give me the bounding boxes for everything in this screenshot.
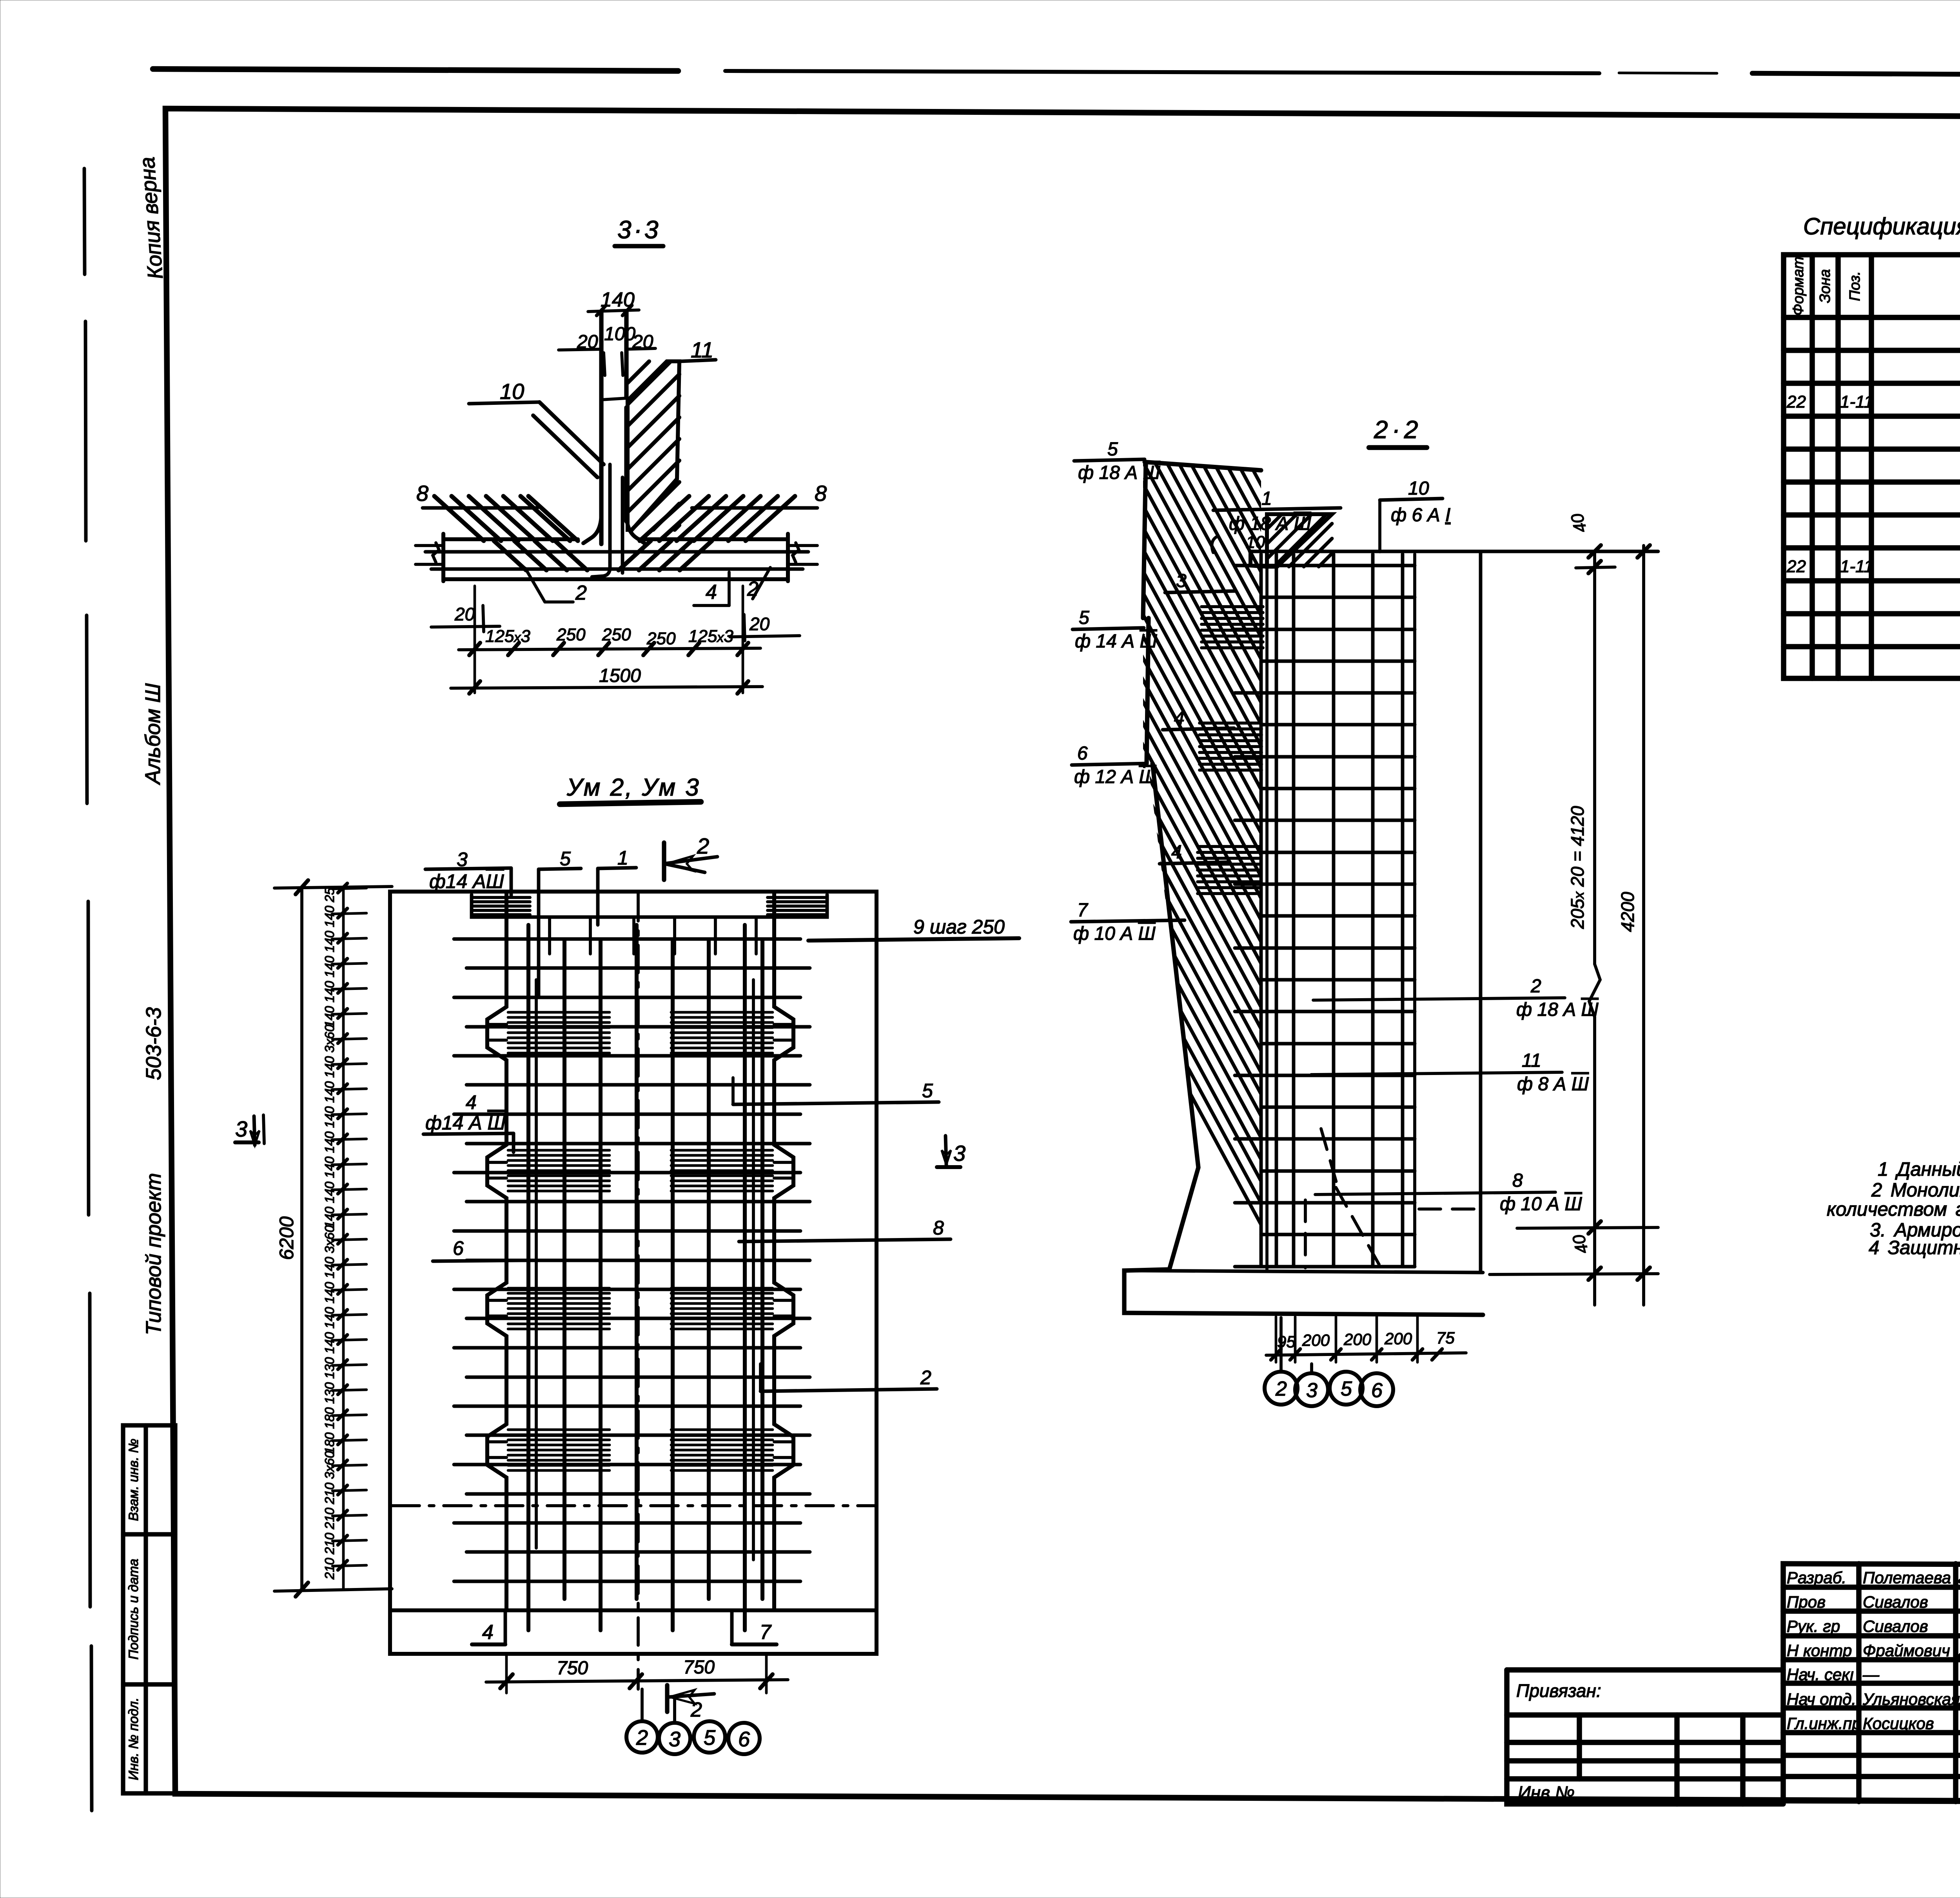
svg-text:180: 180 [322,1407,337,1429]
svg-text:10: 10 [500,379,524,404]
svg-text:ф14 АШ: ф14 АШ [429,870,505,892]
svg-text:Пров: Пров [1787,1593,1826,1611]
svg-text:2·2: 2·2 [1374,415,1422,444]
svg-text:ф 18 А Ш: ф 18 А Ш [1078,462,1161,483]
svg-text:ф 10 А Ш: ф 10 А Ш [1073,923,1156,944]
svg-text:3: 3 [1306,1379,1318,1402]
svg-text:Спецификация: Спецификация [1803,213,1960,239]
svg-text:Фраймович: Фраймович [1863,1641,1950,1660]
svg-text:4: 4 [482,1621,494,1644]
svg-text:—: — [1862,1665,1880,1684]
svg-text:250: 250 [602,625,631,644]
svg-text:140: 140 [322,1181,337,1203]
svg-text:140: 140 [322,981,337,1002]
svg-text:7: 7 [760,1621,772,1644]
svg-text:5: 5 [1107,439,1118,460]
svg-text:140: 140 [322,1156,337,1178]
svg-text:140: 140 [322,1256,337,1278]
svg-text:200: 200 [1384,1329,1412,1348]
svg-text:Разраб.: Разраб. [1787,1568,1846,1587]
svg-text:ф 10 А Ш: ф 10 А Ш [1500,1194,1583,1215]
svg-text:количеством гнезд сопряжения: количеством гнезд сопряжения. [1827,1199,1960,1220]
svg-text:5: 5 [1079,607,1089,628]
svg-text:ф 8 А Ш: ф 8 А Ш [1517,1074,1589,1095]
svg-text:9 шаг 250: 9 шаг 250 [913,916,1005,938]
svg-text:6: 6 [453,1237,464,1259]
svg-text:Типовой проект: Типовой проект [142,1173,165,1335]
svg-text:200: 200 [1302,1331,1330,1349]
svg-text:75: 75 [1436,1329,1455,1347]
svg-text:750: 750 [683,1657,715,1678]
svg-text:140: 140 [322,1282,337,1303]
svg-text:3х60: 3х60 [322,1225,337,1253]
svg-text:ф 18 А Ш: ф 18 А Ш [1229,513,1312,534]
svg-text:5: 5 [704,1726,716,1749]
svg-text:10: 10 [1408,478,1429,499]
svg-text:2: 2 [690,1699,702,1721]
svg-text:3: 3 [953,1141,965,1166]
svg-text:210: 210 [322,1507,337,1530]
svg-text:8: 8 [1512,1170,1523,1191]
svg-text:Гл.инж.пр: Гл.инж.пр [1787,1714,1861,1733]
svg-text:1-11: 1-11 [1840,392,1873,412]
svg-text:20: 20 [454,604,475,624]
svg-text:22: 22 [1786,392,1806,412]
svg-text:Ульяновская: Ульяновская [1862,1690,1960,1708]
svg-text:Формат: Формат [1790,257,1807,316]
svg-text:210: 210 [322,1557,337,1580]
svg-text:Подпись и дата: Подпись и дата [126,1559,141,1659]
svg-text:Альбом Ш: Альбом Ш [141,683,165,785]
svg-text:1: 1 [617,847,628,869]
svg-text:1-11: 1-11 [1840,557,1873,576]
svg-text:Косицков: Косицков [1863,1714,1934,1733]
svg-text:Инв. № подл.: Инв. № подл. [126,1698,141,1780]
svg-text:5: 5 [1341,1378,1352,1400]
svg-text:3: 3 [235,1117,247,1141]
svg-text:Зона: Зона [1817,269,1833,303]
svg-text:140: 140 [322,1131,337,1153]
svg-text:2: 2 [575,582,587,604]
svg-text:1: 1 [1261,488,1272,509]
svg-text:2: 2 [636,1726,648,1749]
svg-text:40: 40 [1567,511,1591,535]
svg-text:750: 750 [557,1658,588,1679]
svg-text:Полетаева: Полетаева [1863,1568,1951,1587]
svg-text:Рук. гр: Рук. гр [1787,1617,1840,1635]
svg-text:5: 5 [560,848,571,870]
svg-text:100: 100 [604,324,635,344]
svg-text:40: 40 [1569,1233,1592,1256]
svg-text:3х60: 3х60 [322,1024,337,1053]
svg-text:ф 12 А Ш: ф 12 А Ш [1074,767,1157,787]
svg-text:125x3: 125x3 [485,627,530,646]
svg-text:4 Защитный слой бетона для: 4 Защитный слой бетона для арматуры - 20… [1869,1237,1960,1258]
svg-text:7: 7 [1077,900,1089,921]
svg-text:140: 140 [322,1307,337,1329]
svg-text:ф 14 А Ш: ф 14 А Ш [1075,631,1158,652]
svg-text:6200: 6200 [276,1216,298,1260]
svg-text:140: 140 [322,930,337,952]
svg-text:140: 140 [322,905,337,927]
svg-text:200: 200 [1343,1330,1372,1349]
svg-text:4: 4 [1171,842,1182,863]
svg-text:22: 22 [1786,557,1806,576]
svg-text:3·3: 3·3 [617,216,661,244]
svg-text:2: 2 [697,834,709,858]
svg-text:503-6-3: 503-6-3 [142,1007,165,1080]
svg-text:140: 140 [322,1332,337,1354]
svg-text:8: 8 [933,1217,944,1239]
svg-text:210: 210 [322,1532,337,1555]
svg-text:3: 3 [1176,571,1187,591]
svg-text:140: 140 [322,955,337,977]
svg-text:140: 140 [322,1081,337,1103]
svg-text:25: 25 [322,888,337,903]
svg-text:ф 18 А Ш: ф 18 А Ш [1516,999,1599,1020]
svg-text:4200: 4200 [1617,892,1638,932]
svg-text:11: 11 [1522,1050,1541,1071]
svg-text:Копия верна: Копия верна [135,156,167,280]
svg-text:130: 130 [322,1382,337,1404]
svg-text:8: 8 [416,481,428,506]
svg-text:Поз.: Поз. [1847,271,1863,301]
svg-text:4: 4 [1174,708,1185,729]
svg-text:Взам. инв. №: Взам. инв. № [126,1439,141,1521]
svg-text:4: 4 [706,581,717,604]
svg-text:140: 140 [322,1056,337,1078]
svg-text:2: 2 [1275,1378,1287,1400]
svg-text:2: 2 [920,1367,931,1389]
svg-text:2 Монолитный участок Ум 3: 2 Монолитный участок Ум 3 отличается от … [1871,1180,1960,1201]
svg-text:Н контр: Н контр [1787,1641,1852,1660]
svg-text:10: 10 [1246,533,1265,552]
svg-text:3: 3 [669,1728,681,1751]
svg-text:3х60: 3х60 [322,1451,337,1479]
svg-text:1 Данный лист читать совме: 1 Данный лист читать совместно с чертежа… [1878,1159,1960,1180]
svg-text:1500: 1500 [599,665,641,686]
svg-text:Нач. секı: Нач. секı [1787,1665,1854,1684]
svg-text:130: 130 [322,1357,337,1379]
svg-text:140: 140 [322,1106,337,1128]
svg-text:Инв №: Инв № [1518,1782,1575,1803]
svg-text:Сивалов: Сивалов [1863,1593,1928,1611]
svg-text:ф14 А Ш: ф14 А Ш [425,1112,506,1134]
svg-text:20: 20 [749,614,770,634]
svg-text:4: 4 [466,1091,477,1113]
svg-text:8: 8 [815,481,827,506]
svg-text:6: 6 [1371,1379,1383,1402]
svg-text:ф 6 А I: ф 6 А I [1391,505,1450,526]
svg-text:Сивалов: Сивалов [1863,1617,1928,1635]
svg-text:2: 2 [1530,976,1541,997]
svg-text:250: 250 [556,625,586,644]
svg-text:Привязан:: Привязан: [1516,1680,1601,1701]
svg-text:Нач отд.: Нач отд. [1787,1690,1856,1708]
svg-text:210: 210 [322,1482,337,1505]
svg-text:Ум 2, Ум 3: Ум 2, Ум 3 [566,774,701,801]
svg-text:6: 6 [1077,743,1088,764]
svg-text:5: 5 [922,1080,933,1102]
svg-text:6: 6 [738,1728,750,1751]
svg-text:205x 20 = 4120: 205x 20 = 4120 [1567,806,1588,929]
svg-text:125x3: 125x3 [688,627,733,646]
